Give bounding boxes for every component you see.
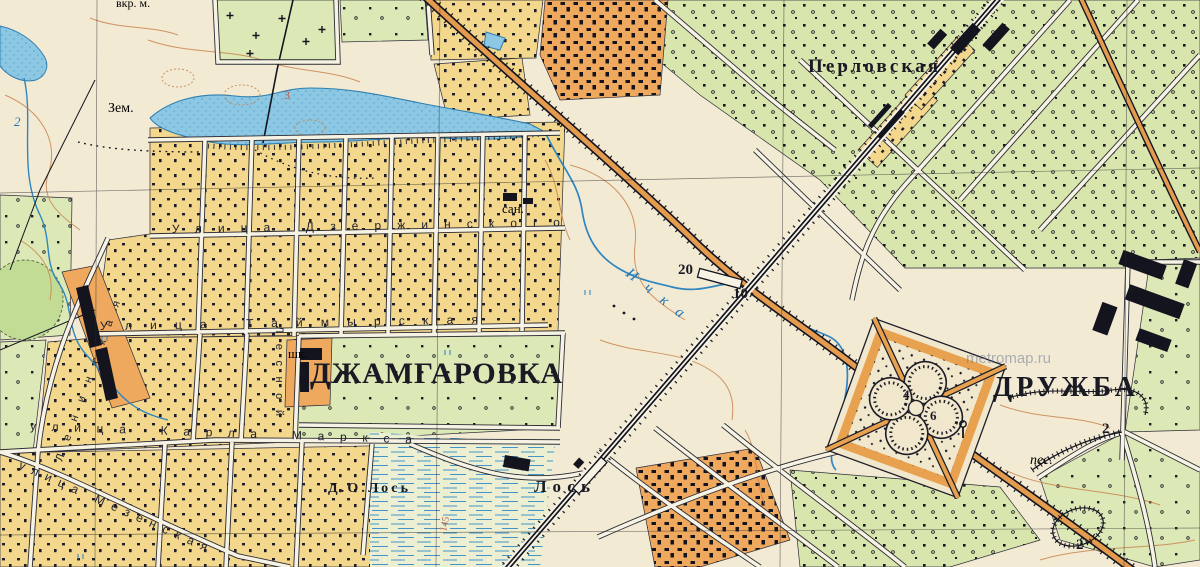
label-do-los: Д.О.Лось [328, 481, 409, 496]
label-sand: пес. [1030, 453, 1053, 468]
label-bridge-tonnage: 10 [733, 286, 748, 302]
label-perlovskaya: Перловская [808, 56, 938, 77]
label-plot-number: 2 [1102, 421, 1110, 437]
watermark: metromap.ru [966, 350, 1051, 367]
label-zem: Зем. [108, 101, 134, 116]
label-top-partial: вкр. м. [116, 0, 150, 10]
label-pit-number: 2 [1076, 537, 1084, 553]
label-park-number-6: 6 [930, 408, 937, 423]
label-sanatorium: сан. [502, 201, 524, 216]
label-school: шк. [288, 346, 308, 361]
map-canvas[interactable]: ДЖАМГАРОВКА ДРУЖБА Перловская Лось Д.О.Л… [0, 0, 1200, 567]
label-park-number-4: 4 [903, 387, 910, 402]
label-dzhamgarovka: ДЖАМГАРОВКА [310, 357, 562, 390]
label-lake-number: 3 [284, 88, 290, 102]
label-bridge-width: 20 [678, 262, 693, 278]
label-river-depth: 2 [14, 114, 21, 129]
topo-map-screenshot: ДЖАМГАРОВКА ДРУЖБА Перловская Лось Д.О.Л… [0, 0, 1200, 567]
